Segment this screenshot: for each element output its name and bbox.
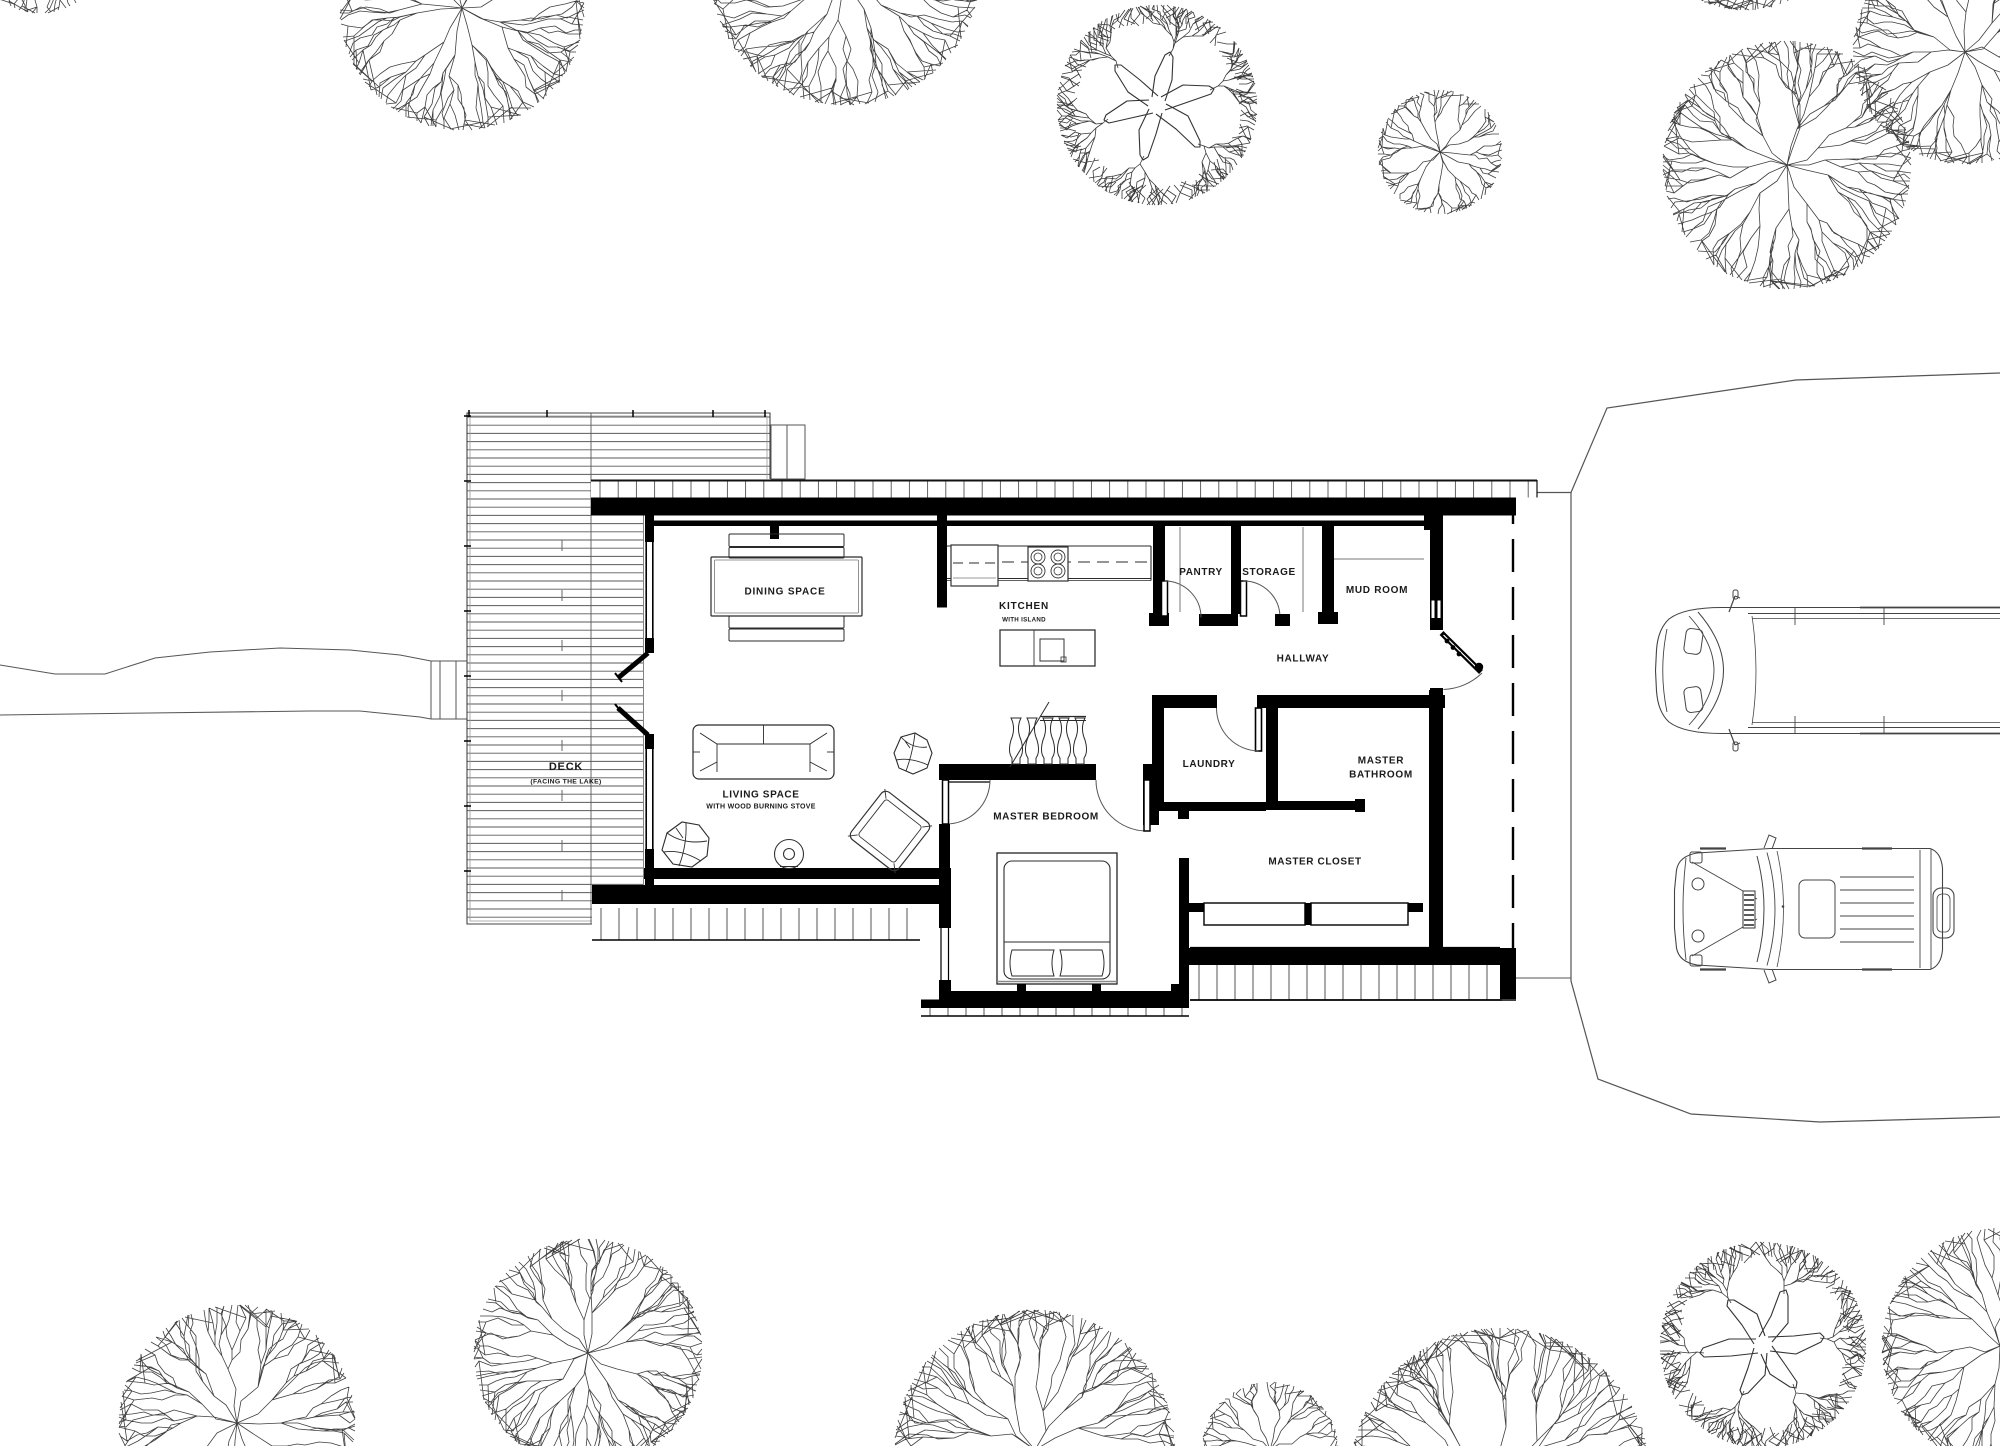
svg-text:PANTRY: PANTRY bbox=[1179, 567, 1223, 578]
svg-text:KITCHEN: KITCHEN bbox=[999, 601, 1049, 612]
svg-text:LAUNDRY: LAUNDRY bbox=[1183, 759, 1236, 770]
svg-text:HALLWAY: HALLWAY bbox=[1277, 654, 1330, 665]
svg-text:DINING SPACE: DINING SPACE bbox=[744, 587, 825, 598]
svg-text:WITH WOOD BURNING STOVE: WITH WOOD BURNING STOVE bbox=[706, 804, 815, 811]
svg-text:LIVING SPACE: LIVING SPACE bbox=[722, 790, 799, 801]
svg-text:MUD ROOM: MUD ROOM bbox=[1346, 585, 1408, 596]
svg-text:MASTER: MASTER bbox=[1358, 756, 1405, 767]
svg-text:MASTER CLOSET: MASTER CLOSET bbox=[1268, 857, 1361, 868]
svg-text:MASTER BEDROOM: MASTER BEDROOM bbox=[993, 812, 1099, 823]
svg-text:STORAGE: STORAGE bbox=[1242, 567, 1295, 578]
svg-text:DECK: DECK bbox=[549, 761, 583, 773]
svg-text:(FACING THE LAKE): (FACING THE LAKE) bbox=[530, 779, 601, 786]
svg-text:WITH ISLAND: WITH ISLAND bbox=[1002, 617, 1046, 624]
svg-text:BATHROOM: BATHROOM bbox=[1349, 770, 1413, 781]
